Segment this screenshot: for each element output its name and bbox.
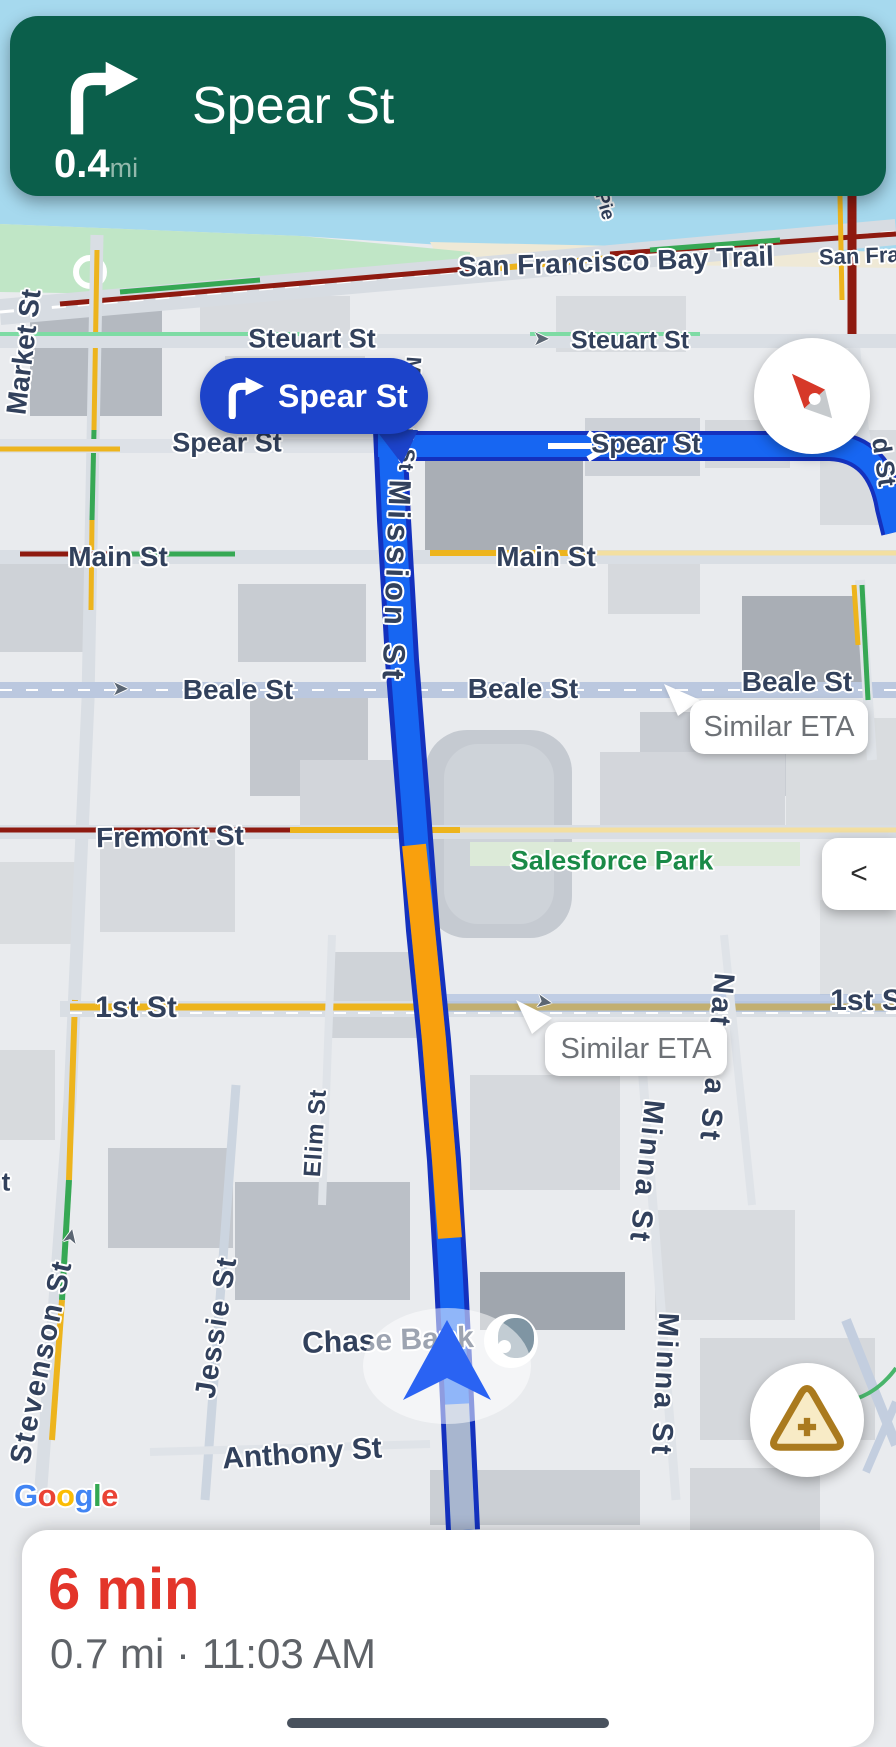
distance-value: 0.4 [54,142,110,186]
turn-right-icon [220,373,266,419]
google-logo-letter: e [101,1478,118,1513]
google-logo-letter: g [75,1478,93,1513]
compass-icon [767,351,857,441]
similar-eta-bubble[interactable]: Similar ETA [690,700,868,754]
map-canvas[interactable] [0,0,896,1747]
nav-instruction-banner[interactable]: Spear St 0.4mi [10,16,886,196]
chevron-left-icon: < [850,857,868,891]
compass-button[interactable] [754,338,870,454]
google-logo: Google [14,1478,118,1514]
similar-eta-bubble[interactable]: Similar ETA [545,1022,727,1076]
distance-to-turn: 0.4mi [54,142,138,187]
next-street-name: Spear St [192,76,394,136]
trip-bottom-sheet[interactable]: 6 min 0.7 mi · 11:03 AM [22,1530,874,1747]
trip-details: 0.7 mi · 11:03 AM [50,1630,376,1678]
turn-callout-street: Spear St [278,378,408,415]
navigation-screen: PieSan Francisco Bay TrailSan FranMarket… [0,0,896,1747]
report-incident-button[interactable] [750,1363,864,1477]
google-logo-letter: o [38,1478,56,1513]
trip-eta: 6 min [48,1556,200,1623]
drag-handle[interactable] [287,1718,609,1728]
turn-callout-tail [372,430,420,466]
distance-unit: mi [110,153,139,183]
warning-triangle-icon [765,1380,849,1460]
nav-chevron-icon [403,1320,491,1402]
similar-eta-label: Similar ETA [561,1033,712,1066]
turn-right-icon [56,56,142,142]
similar-eta-label: Similar ETA [704,711,855,744]
collapse-panel-button[interactable]: < [822,838,896,910]
turn-callout[interactable]: Spear St [200,358,428,434]
google-logo-letter: G [14,1478,38,1513]
google-logo-letter: l [93,1478,101,1513]
google-logo-letter: o [56,1478,74,1513]
